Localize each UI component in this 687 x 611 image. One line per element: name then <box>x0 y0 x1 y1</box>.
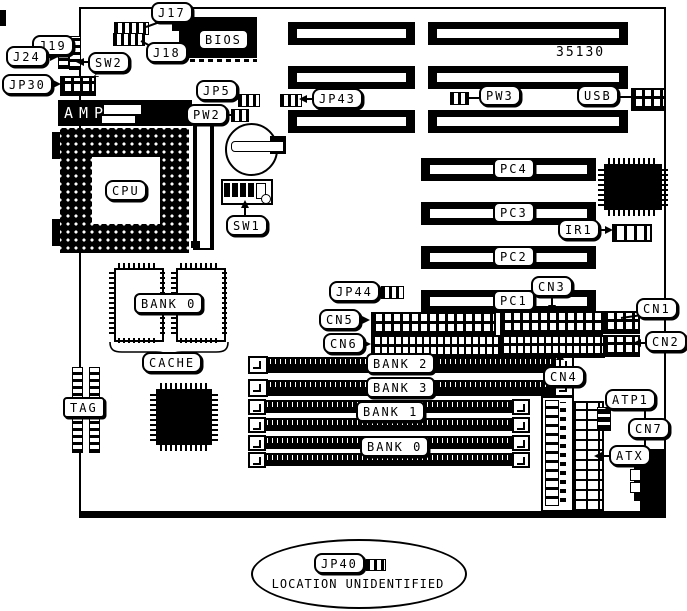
header-cn3 <box>500 311 603 335</box>
callout-atx: ATX <box>609 445 651 466</box>
tag-label: TAG <box>63 397 105 418</box>
simm-bank-label: BANK 0 <box>360 436 429 457</box>
header-cn4 <box>500 335 605 358</box>
chip-pins <box>608 210 658 216</box>
header-jp30 <box>60 76 96 96</box>
simm-clip <box>512 435 530 451</box>
header-cn5 <box>371 312 496 336</box>
keyboard-connector-pin <box>630 469 641 481</box>
callout-line <box>601 455 609 457</box>
chip-pins <box>608 158 658 164</box>
callout-jp5: JP5 <box>196 80 238 101</box>
callout-pw3: PW3 <box>479 85 521 106</box>
arrowhead <box>362 316 370 324</box>
simm-clip <box>248 417 266 433</box>
arrowhead <box>299 95 307 103</box>
chip-pins <box>109 272 114 334</box>
callout-j17: J17 <box>151 2 193 23</box>
simm-clip <box>248 379 268 397</box>
keyboard-connector-pin <box>630 482 641 493</box>
chip-pins <box>160 383 208 389</box>
arrowhead <box>605 226 613 234</box>
arrowhead <box>53 80 61 88</box>
isa-slot-segment <box>428 22 628 45</box>
pci-slot-label: PC4 <box>493 158 535 179</box>
chip-pins <box>160 445 208 451</box>
cache-bank-label: BANK 0 <box>134 293 203 314</box>
jumper-jp5 <box>238 94 260 107</box>
pci-slot-label: PC1 <box>493 290 535 311</box>
controller-chip <box>156 389 212 445</box>
regulator-bar <box>193 109 214 250</box>
chip-pins <box>598 168 604 206</box>
callout-cn3: CN3 <box>531 276 573 297</box>
callout-sw2: SW2 <box>88 52 130 73</box>
header-usb <box>631 88 666 111</box>
callout-j24: J24 <box>6 46 48 67</box>
chip-pins <box>150 393 156 441</box>
pci-slot-label: PC3 <box>493 202 535 223</box>
battery-clip <box>231 141 284 152</box>
note-text: LOCATION UNIDENTIFIED <box>262 578 454 590</box>
amp-detail <box>102 116 135 123</box>
simm-bank-label: BANK 3 <box>366 377 435 398</box>
chip-pins <box>118 263 156 268</box>
arrowhead <box>594 452 602 460</box>
simm-bank-label: BANK 2 <box>366 353 435 374</box>
simm-clip <box>512 399 530 415</box>
callout-usb: USB <box>577 85 619 106</box>
simm-clip <box>512 452 530 468</box>
chip-pins <box>222 272 227 334</box>
arrowhead <box>241 200 249 208</box>
isa-slot-segment <box>288 66 415 89</box>
simm-bank-label: BANK 1 <box>356 401 425 422</box>
at-power-ticks <box>560 402 566 502</box>
callout-cn6: CN6 <box>323 333 365 354</box>
simm-clip <box>248 356 268 374</box>
simm-clip <box>248 399 266 415</box>
sw1-notch <box>261 194 271 204</box>
callout-pw2: PW2 <box>186 104 228 125</box>
callout-jp43: JP43 <box>312 88 363 109</box>
callout-cn7: CN7 <box>628 418 670 439</box>
jumper-jp40 <box>366 559 386 571</box>
jumper-jp44 <box>381 286 404 299</box>
callout-cn4: CN4 <box>543 366 585 387</box>
bios-chip-notch <box>172 31 179 42</box>
callout-jp40: JP40 <box>314 553 365 574</box>
simm-clip <box>248 435 266 451</box>
motherboard-layout-diagram: 35130 J17 J18 BIOS J19 J24 SW2 JP30 2 AM… <box>0 0 687 611</box>
arrowhead <box>548 305 556 313</box>
pci-slot-label: PC2 <box>493 246 535 267</box>
callout-cn1: CN1 <box>636 298 678 319</box>
socket-tab <box>52 219 60 246</box>
callout-atp1: ATP1 <box>605 389 656 410</box>
isa-slot-segment <box>288 22 415 45</box>
chipset-chip <box>604 164 662 210</box>
callout-j18: J18 <box>146 42 188 63</box>
keyboard-connector <box>640 499 666 513</box>
callout-cn5: CN5 <box>319 309 361 330</box>
simm-clip <box>512 417 530 433</box>
bios-label: BIOS <box>198 29 249 50</box>
header-j18 <box>113 33 145 46</box>
arrowhead <box>633 339 641 347</box>
jumper-pw2 <box>231 109 249 122</box>
isa-slot-segment <box>428 110 628 133</box>
socket-tab <box>52 132 60 159</box>
note-ellipse <box>251 539 467 609</box>
board-part-number: 35130 <box>556 46 605 59</box>
callout-jp44: JP44 <box>329 281 380 302</box>
arrowhead <box>76 58 84 66</box>
chip-pins <box>662 168 668 206</box>
chip-pins <box>180 263 218 268</box>
isa-slot-segment <box>288 110 415 133</box>
callout-line <box>467 97 479 99</box>
regulator-foot <box>191 241 200 248</box>
amp-detail <box>104 105 141 114</box>
at-power-pins <box>545 400 559 506</box>
arrowhead <box>556 352 564 360</box>
sw1-switch-cells <box>224 183 255 197</box>
chip-pins <box>212 393 218 441</box>
header-ir1 <box>612 224 652 242</box>
callout-jp30: JP30 <box>2 74 53 95</box>
scan-mark <box>0 10 6 26</box>
callout-cache: CACHE <box>142 352 202 373</box>
callout-cn2: CN2 <box>645 331 687 352</box>
callout-ir1: IR1 <box>558 219 600 240</box>
simm-clip <box>248 452 266 468</box>
cpu-label: CPU <box>105 180 147 201</box>
callout-sw1: SW1 <box>226 215 268 236</box>
